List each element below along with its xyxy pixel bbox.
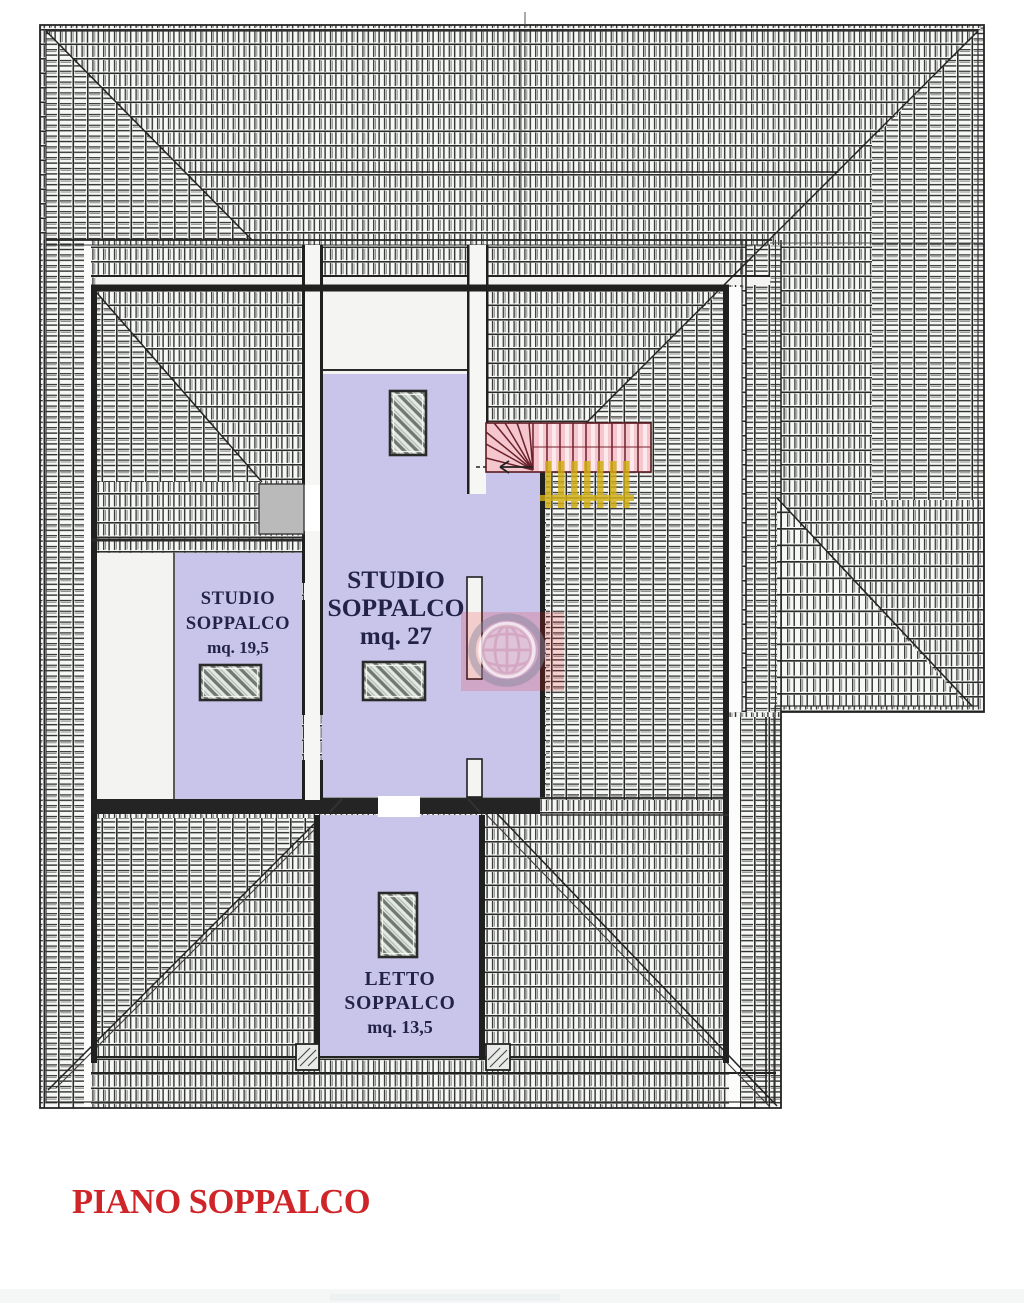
svg-text:SOPPALCO: SOPPALCO: [186, 614, 290, 634]
svg-text:STUDIO: STUDIO: [201, 589, 276, 609]
svg-text:mq. 19,5: mq. 19,5: [207, 638, 269, 657]
svg-text:mq. 13,5: mq. 13,5: [367, 1017, 433, 1037]
svg-text:mq. 27: mq. 27: [360, 623, 432, 650]
svg-text:LETTO: LETTO: [365, 969, 436, 990]
svg-text:SOPPALCO: SOPPALCO: [328, 593, 465, 622]
svg-text:SOPPALCO: SOPPALCO: [344, 993, 455, 1014]
svg-text:PIANO SOPPALCO: PIANO SOPPALCO: [72, 1183, 370, 1221]
svg-text:STUDIO: STUDIO: [347, 565, 445, 594]
